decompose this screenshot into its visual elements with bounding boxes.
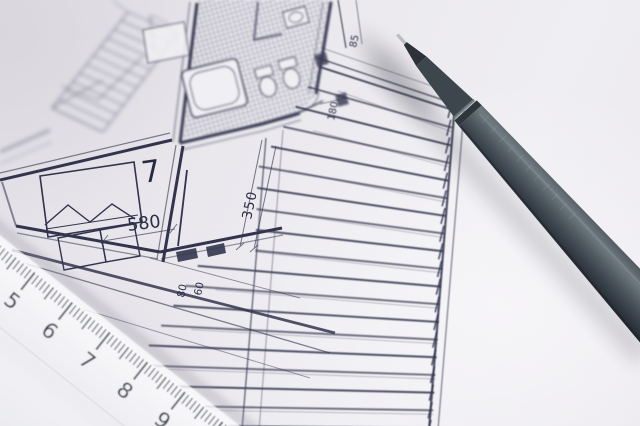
dim-label-60: 60	[192, 281, 207, 297]
floor-plan-svg: 7 580 350 80 60 180	[0, 0, 640, 426]
photo-canvas: 7 580 350 80 60 180	[0, 0, 640, 426]
room-number-label: 7	[139, 154, 163, 191]
bathroom-tile-hatch	[0, 0, 534, 331]
bathroom-area	[0, 0, 534, 331]
staircase-drawing	[0, 0, 178, 164]
doormat-rect	[143, 22, 189, 63]
dim-label-350: 350	[239, 189, 261, 220]
door-leaf-line	[178, 170, 187, 246]
dim-label-580: 580	[126, 212, 162, 236]
bathtub	[181, 58, 248, 118]
dim-label-85: 85	[348, 34, 361, 49]
